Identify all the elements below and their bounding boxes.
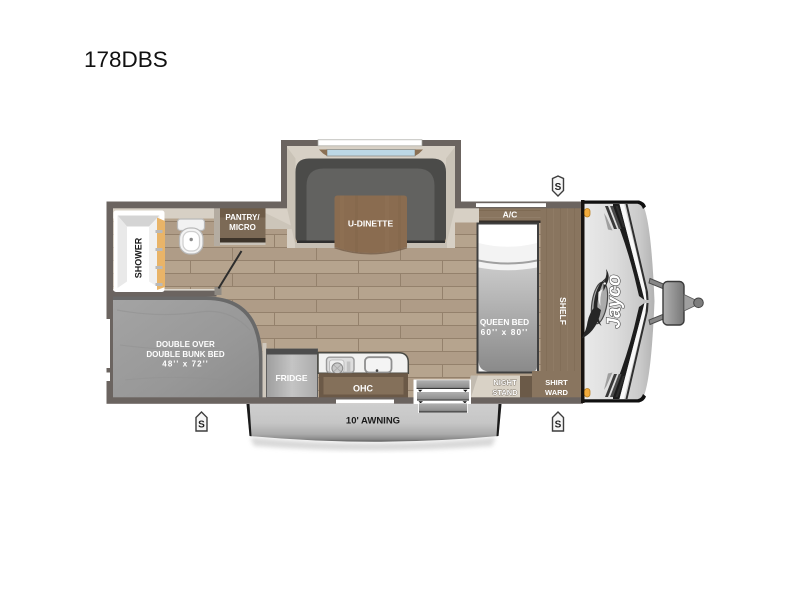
- svg-text:NIGHT: NIGHT: [493, 378, 517, 387]
- svg-text:PANTRY/: PANTRY/: [225, 213, 260, 222]
- svg-text:48'' x 72'': 48'' x 72'': [162, 359, 208, 368]
- svg-text:Jayco: Jayco: [604, 275, 625, 329]
- svg-text:U-DINETTE: U-DINETTE: [348, 219, 394, 229]
- svg-text:DOUBLE BUNK BED: DOUBLE BUNK BED: [146, 350, 224, 359]
- svg-text:A/C: A/C: [503, 210, 518, 220]
- svg-text:QUEEN BED: QUEEN BED: [480, 317, 529, 327]
- svg-text:DOUBLE OVER: DOUBLE OVER: [156, 340, 215, 349]
- svg-text:WARD: WARD: [545, 388, 568, 397]
- svg-text:S: S: [555, 420, 562, 431]
- svg-text:178DBS: 178DBS: [84, 47, 168, 72]
- svg-text:MICRO: MICRO: [229, 223, 256, 232]
- svg-text:10' AWNING: 10' AWNING: [346, 416, 400, 427]
- svg-text:S: S: [555, 182, 562, 193]
- svg-text:SHELF: SHELF: [558, 297, 568, 325]
- svg-text:S: S: [198, 420, 205, 431]
- svg-text:SHOWER: SHOWER: [134, 237, 144, 278]
- svg-text:SHIRT: SHIRT: [545, 378, 568, 387]
- svg-text:STAND: STAND: [492, 388, 518, 397]
- svg-text:OHC: OHC: [353, 384, 374, 394]
- svg-text:60'' x 80'': 60'' x 80'': [481, 327, 529, 337]
- svg-text:FRIDGE: FRIDGE: [275, 373, 307, 383]
